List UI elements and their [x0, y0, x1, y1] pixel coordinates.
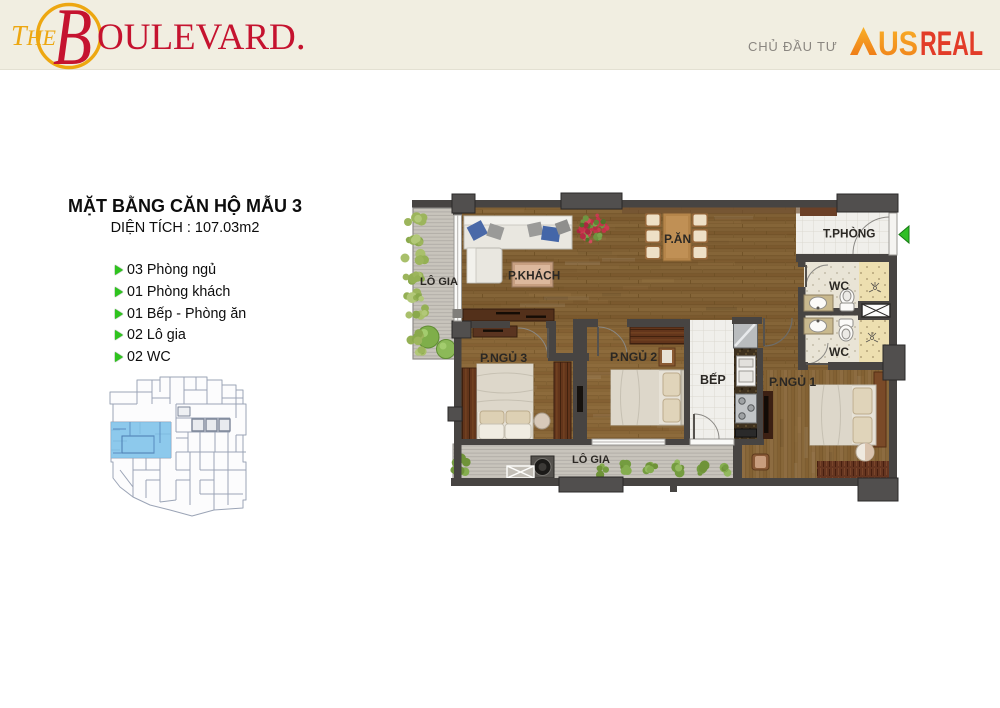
svg-text:B: B	[53, 0, 92, 80]
svg-text:REAL: REAL	[920, 25, 983, 60]
svg-text:LÔ GIA: LÔ GIA	[572, 453, 610, 466]
svg-text:P.ĂN: P.ĂN	[664, 231, 691, 246]
svg-text:P.NGỦ 1: P.NGỦ 1	[769, 374, 816, 389]
svg-text:T.PHÒNG: T.PHÒNG	[823, 227, 875, 241]
svg-text:P.NGỦ 2: P.NGỦ 2	[610, 349, 657, 364]
svg-text:OULEVARD.: OULEVARD.	[97, 13, 306, 58]
svg-text:BẾP: BẾP	[700, 372, 726, 387]
svg-text:LÔ GIA: LÔ GIA	[420, 275, 458, 288]
svg-text:P.KHÁCH: P.KHÁCH	[508, 269, 560, 283]
svg-text:P.NGỦ 3: P.NGỦ 3	[480, 350, 527, 365]
svg-text:THE: THE	[11, 21, 56, 52]
svg-text:WC: WC	[829, 279, 849, 293]
svg-text:WC: WC	[829, 345, 849, 359]
svg-text:US: US	[878, 25, 918, 60]
